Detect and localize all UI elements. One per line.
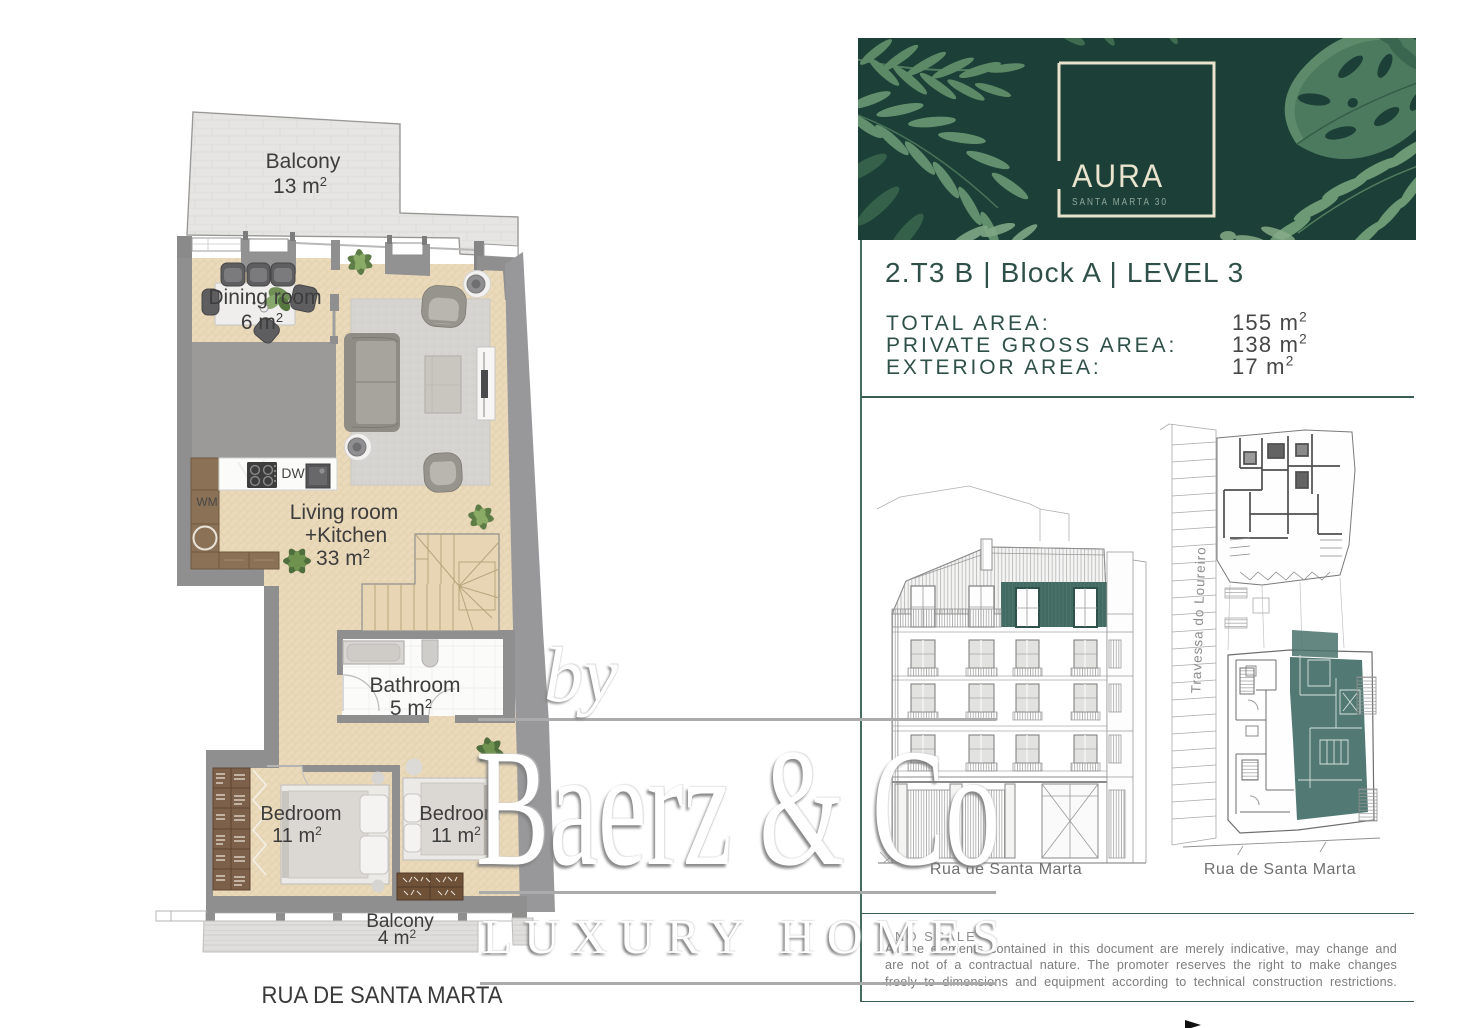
svg-text:Dining room: Dining room [208,286,321,309]
svg-text:+Kitchen: +Kitchen [305,524,387,547]
svg-text:Balcony: Balcony [266,150,341,173]
svg-text:Bathroom: Bathroom [369,674,460,697]
svg-text:11 m2: 11 m2 [431,824,481,847]
svg-text:WM: WM [196,495,217,509]
svg-text:Bedroom: Bedroom [419,803,500,825]
svg-text:AURA: AURA [1072,158,1164,194]
svg-text:SANTA MARTA 30: SANTA MARTA 30 [1072,197,1168,208]
svg-text:33 m2: 33 m2 [316,546,370,570]
svg-text:Bedroom: Bedroom [260,803,341,825]
svg-text:13 m2: 13 m2 [273,174,327,198]
svg-text:Travessa do Loureiro: Travessa do Loureiro [1188,546,1208,694]
svg-text:11 m2: 11 m2 [272,824,322,847]
svg-text:Living room: Living room [290,501,399,524]
svg-text:RUA DE SANTA MARTA: RUA DE SANTA MARTA [262,982,503,1009]
svg-text:DW: DW [281,465,305,481]
